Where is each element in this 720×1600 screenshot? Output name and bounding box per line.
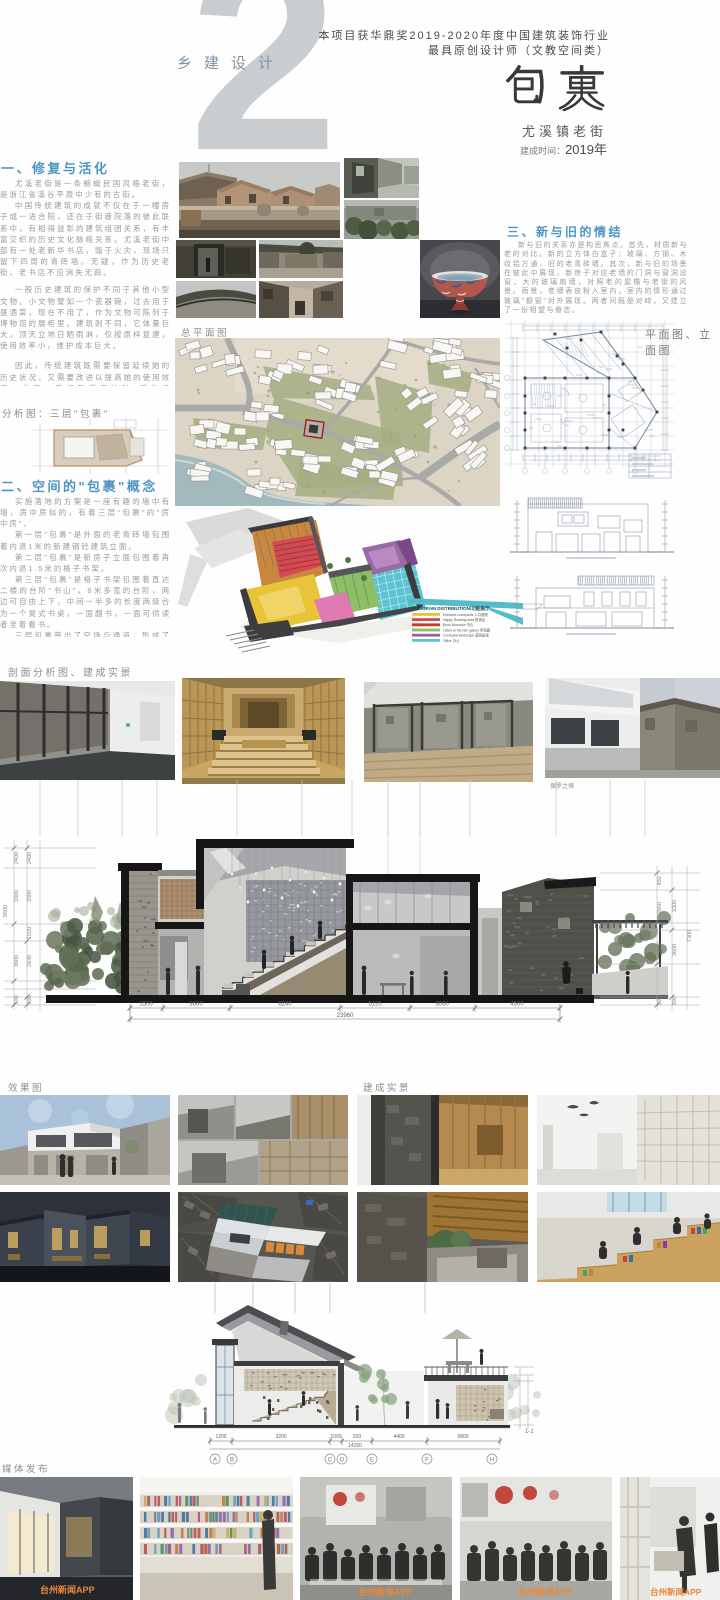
svg-text:Entrance courtyards 入口庭院: Entrance courtyards 入口庭院 xyxy=(443,612,488,617)
svg-text:Office 办公: Office 办公 xyxy=(443,638,460,643)
svg-text:B: B xyxy=(230,1458,234,1464)
svg-text:A: A xyxy=(213,1458,217,1464)
svg-text:2430: 2430 xyxy=(27,955,33,967)
svg-text:3600: 3600 xyxy=(672,944,678,956)
svg-text:3300: 3300 xyxy=(672,900,678,912)
svg-text:1000: 1000 xyxy=(330,1434,341,1440)
svg-text:台州新闻APP: 台州新闻APP xyxy=(518,1586,573,1597)
svg-text:1-1: 1-1 xyxy=(525,1429,534,1435)
svg-text:1020: 1020 xyxy=(27,927,33,939)
svg-text:3600: 3600 xyxy=(189,1002,203,1008)
svg-text:6240: 6240 xyxy=(278,1002,292,1008)
svg-text:300: 300 xyxy=(672,996,678,1005)
svg-text:9600: 9600 xyxy=(3,905,9,917)
svg-text:F: F xyxy=(425,1458,429,1464)
svg-text:3300: 3300 xyxy=(27,890,33,902)
svg-text:台州新闻APP: 台州新闻APP xyxy=(40,1584,95,1595)
svg-text:5120: 5120 xyxy=(368,1002,382,1008)
svg-text:450: 450 xyxy=(657,876,663,885)
svg-text:Listen to the rain gallery 听雨廊: Listen to the rain gallery 听雨廊 xyxy=(443,627,491,632)
svg-text:C: C xyxy=(328,1458,333,1464)
svg-text:E: E xyxy=(370,1458,374,1464)
svg-text:1200: 1200 xyxy=(215,1434,226,1440)
svg-text:4400: 4400 xyxy=(393,1434,404,1440)
svg-text:1500: 1500 xyxy=(139,1002,153,1008)
svg-text:2850: 2850 xyxy=(657,902,663,914)
svg-text:3600: 3600 xyxy=(14,955,20,967)
svg-text:台州新闻APP: 台州新闻APP xyxy=(650,1587,702,1597)
svg-text:Courtyard landscape 庭院景观: Courtyard landscape 庭院景观 xyxy=(443,633,489,638)
svg-text:D: D xyxy=(340,1458,345,1464)
svg-text:H: H xyxy=(490,1458,494,1464)
svg-text:23960: 23960 xyxy=(337,1013,354,1019)
svg-text:2400: 2400 xyxy=(27,852,33,864)
svg-text:7300: 7300 xyxy=(687,930,693,942)
svg-text:3000: 3000 xyxy=(657,942,663,954)
svg-text:Book Mountain 书山: Book Mountain 书山 xyxy=(443,622,474,627)
svg-text:4500: 4500 xyxy=(510,1002,524,1008)
svg-text:5800: 5800 xyxy=(457,1434,468,1440)
svg-text:3000: 3000 xyxy=(435,1002,449,1008)
svg-text:3300: 3300 xyxy=(14,890,20,902)
svg-text:台州新闻APP: 台州新闻APP xyxy=(358,1586,413,1597)
svg-text:2400: 2400 xyxy=(14,852,20,864)
svg-text:Happy Reading area 悦读区: Happy Reading area 悦读区 xyxy=(443,617,486,622)
svg-text:14150: 14150 xyxy=(348,1443,362,1449)
svg-text:3200: 3200 xyxy=(275,1434,286,1440)
svg-text:300: 300 xyxy=(27,995,33,1004)
svg-text:920: 920 xyxy=(353,1434,362,1440)
svg-text:PROGRAM DISTRIBUTION/功能图示: PROGRAM DISTRIBUTION/功能图示 xyxy=(412,605,490,612)
svg-text:300: 300 xyxy=(14,995,20,1004)
